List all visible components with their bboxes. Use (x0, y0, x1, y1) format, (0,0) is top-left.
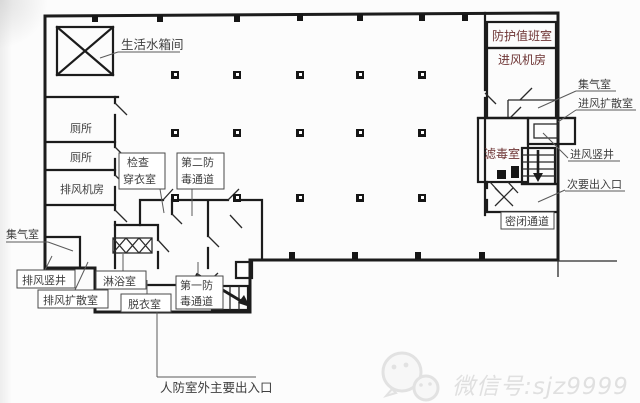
label-gas-collect-right: 集气室 (578, 77, 611, 91)
hatch-corridor (113, 238, 152, 253)
label-exhaust-shaft: 排风竖井 (22, 273, 66, 287)
floor-plan-canvas: 生活水箱间 厕所 厕所 排风机房 检查 穿衣室 第二防 毒通道 集气室 排风竖井… (0, 0, 640, 403)
label-toilet-2: 厕所 (70, 151, 92, 164)
filter-unit (497, 170, 506, 179)
label-intake-shaft: 进风竖井 (570, 147, 614, 161)
label-filter-room: 滤毒室 (484, 146, 520, 161)
watermark: 微信号:sjz9999 (383, 353, 629, 400)
left-wing-walls (45, 27, 262, 268)
label-intake-diffusion: 进风扩散室 (578, 96, 633, 110)
label-secondary-exit: 次要出入口 (567, 177, 622, 191)
watermark-text: 微信号:sjz9999 (452, 374, 629, 400)
label-check-room-2: 穿衣室 (123, 172, 156, 186)
intake-shaft-area (528, 118, 575, 144)
label-undress: 脱衣室 (128, 297, 161, 311)
label-second-passage-2: 毒通道 (181, 172, 214, 186)
label-gas-collect-left: 集气室 (6, 227, 39, 241)
label-second-passage-1: 第二防 (181, 155, 214, 169)
label-duty-room: 防护值班室 (492, 28, 552, 43)
label-boxes (17, 153, 554, 312)
label-main-entrance: 人防室外主要出入口 (160, 380, 273, 395)
label-first-passage-1: 第一防 (180, 278, 213, 292)
label-exhaust-diffusion: 排风扩散室 (43, 293, 98, 307)
label-shower: 淋浴室 (103, 274, 136, 288)
label-first-passage-2: 毒通道 (180, 294, 213, 308)
wechat-icon-small (414, 376, 438, 400)
floor-plan-drawing: 生活水箱间 厕所 厕所 排风机房 检查 穿衣室 第二防 毒通道 集气室 排风竖井… (0, 0, 640, 403)
label-exhaust-fan-room: 排风机房 (60, 182, 104, 196)
label-sealed-passage: 密闭通道 (505, 214, 549, 228)
label-water-tank: 生活水箱间 (121, 37, 184, 52)
label-toilet-1: 厕所 (70, 122, 92, 135)
filter-unit (511, 166, 519, 178)
label-check-room-1: 检查 (127, 155, 149, 169)
label-intake-fan-room: 进风机房 (498, 52, 546, 67)
